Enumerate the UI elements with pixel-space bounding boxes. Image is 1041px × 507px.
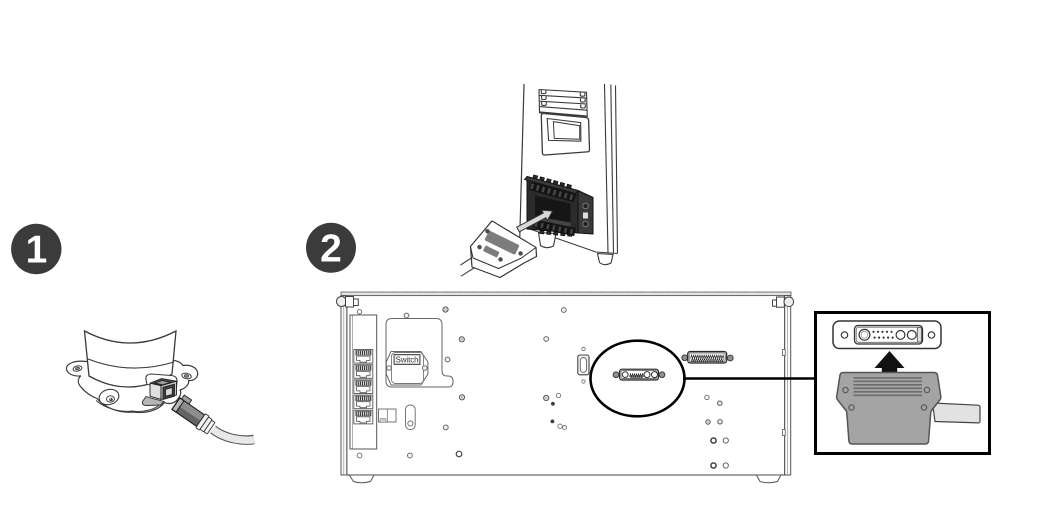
svg-text:1: 1 <box>26 229 48 272</box>
svg-text:2: 2 <box>320 228 342 271</box>
svg-text:Switch: Switch <box>396 355 419 364</box>
